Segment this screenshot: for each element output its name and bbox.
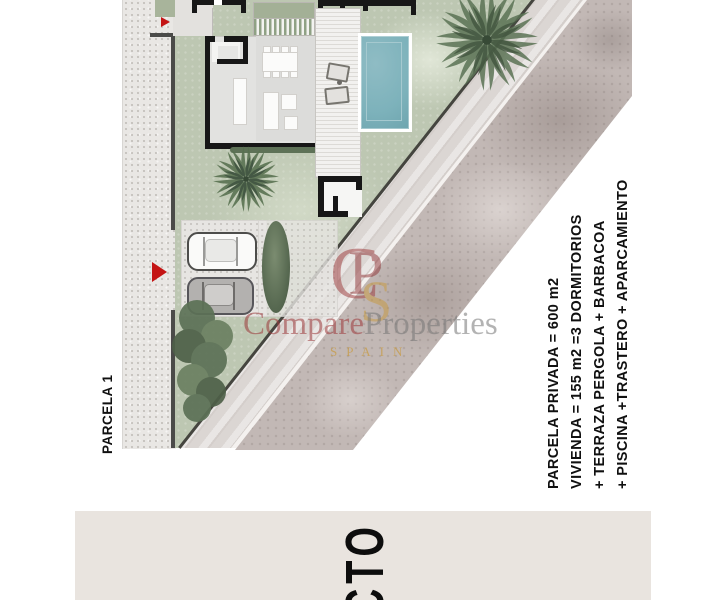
side-table — [337, 80, 342, 85]
dining-table — [262, 52, 298, 72]
palm-tree-icon — [211, 144, 281, 214]
wall — [363, 0, 368, 11]
sofa — [263, 92, 279, 130]
watermark-properties: Properties — [364, 306, 498, 342]
pool-step-line — [366, 42, 402, 121]
parcel-label: PARCELA 1 — [101, 374, 116, 454]
palm-tree-icon — [433, 0, 541, 94]
project-title-partial: CTO — [334, 522, 396, 600]
chair — [272, 71, 280, 78]
entrance-arrow-icon — [152, 262, 167, 282]
pergola-slats — [253, 18, 315, 36]
wall — [333, 196, 338, 215]
wall — [192, 0, 197, 13]
chair — [263, 46, 271, 53]
green-patch — [155, 0, 175, 17]
coffee-table — [284, 116, 298, 130]
spec-piscina: + PISCINA +TRASTERO + APARCAMIENTO — [616, 179, 632, 489]
cypress-tree — [262, 221, 290, 313]
chair — [272, 46, 280, 53]
boundary-wall-upper — [171, 33, 175, 230]
door-gap — [214, 0, 222, 5]
wall — [205, 36, 210, 148]
car-white — [187, 232, 257, 271]
chair — [263, 71, 271, 78]
entrance-arrow-icon — [161, 17, 170, 27]
watermark-country: SPAIN — [330, 344, 411, 360]
chair — [290, 46, 298, 53]
entry-closet — [218, 46, 238, 60]
chair — [281, 46, 289, 53]
kitchen-island — [233, 78, 247, 125]
wall — [241, 0, 246, 13]
chair — [290, 71, 298, 78]
armchair — [281, 94, 297, 110]
spec-terraza: + TERRAZA PERGOLA + BARBACOA — [593, 220, 609, 489]
watermark-brand: CompareProperties — [243, 306, 498, 343]
chair — [281, 71, 289, 78]
spec-vivienda: VIVIENDA = 155 m2 =3 DORMITORIOS — [570, 214, 586, 489]
wall — [217, 59, 243, 64]
site-plan-screenshot: C P S CompareProperties SPAIN PARCELA 1 … — [0, 0, 724, 600]
boundary-wall-corner — [150, 33, 175, 37]
wall — [356, 176, 362, 190]
swimming-pool — [358, 33, 412, 132]
wall — [411, 0, 416, 15]
path-edge-line — [212, 8, 213, 36]
sun-lounger — [324, 86, 350, 105]
watermark-compare: Compare — [243, 306, 364, 342]
spec-parcela-privada: PARCELA PRIVADA = 600 m2 — [547, 278, 563, 489]
wall — [243, 36, 248, 64]
bush-cluster — [167, 298, 245, 428]
